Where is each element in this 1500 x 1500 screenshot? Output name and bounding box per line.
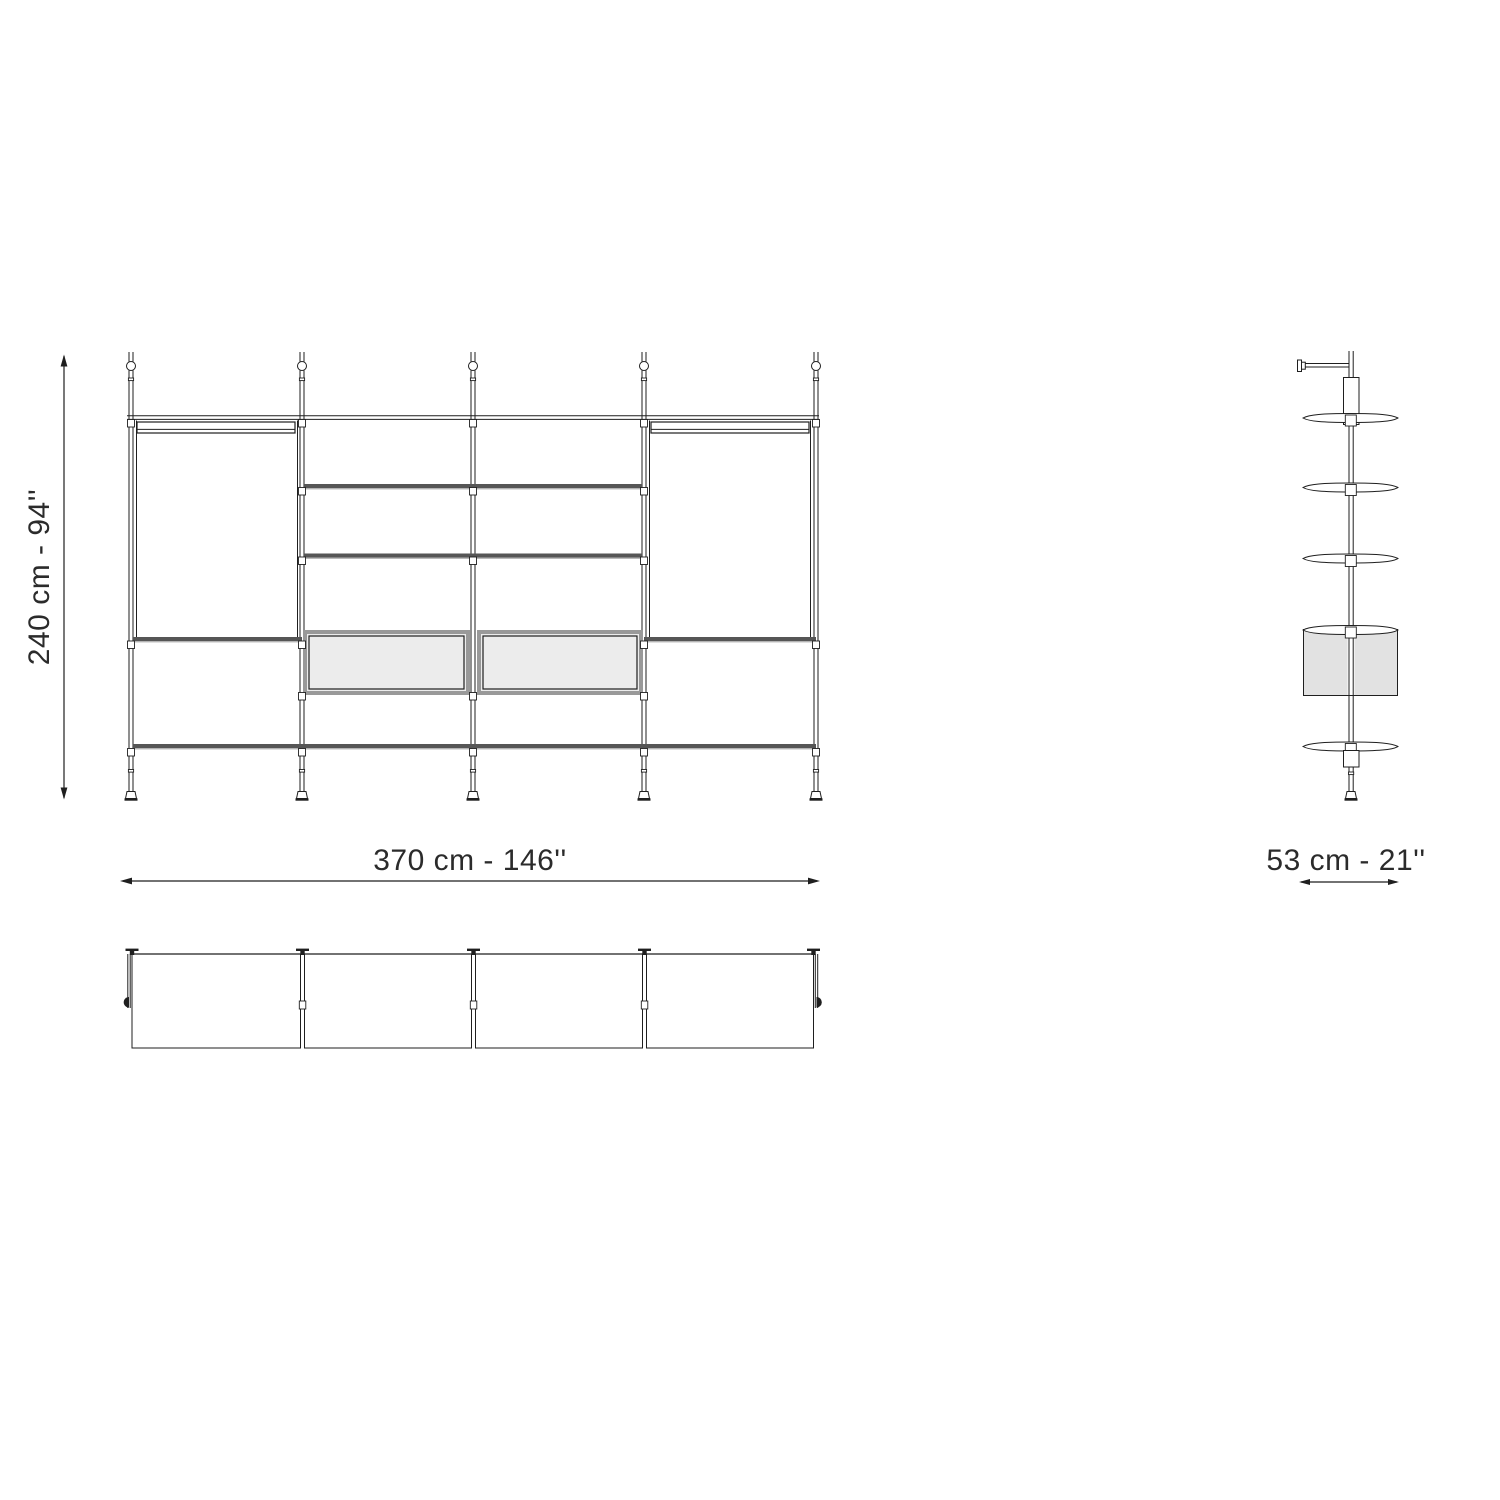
side-connectors (1345, 415, 1356, 755)
hanging-rod-right (651, 422, 809, 433)
side-foot (1345, 792, 1358, 800)
cabinet-left (305, 632, 468, 693)
depth-dimension-label: 53 cm - 21'' (1266, 844, 1425, 878)
post-connectors (128, 420, 820, 757)
side-shelf-profiles (1303, 414, 1398, 752)
ceiling-mount-ring (298, 362, 307, 371)
cabinet-right (479, 632, 641, 693)
ceiling-mount-ring (469, 362, 478, 371)
wardrobe-side-panels (137, 421, 811, 638)
front-feet (125, 792, 823, 800)
dimension-lines (61, 355, 1399, 886)
shelving-unit-drawing (0, 0, 1500, 1500)
plan-view (124, 950, 822, 1048)
lower-sleeve (1344, 751, 1360, 768)
ceiling-mount-ring (127, 362, 136, 371)
side-elevation-view (1298, 351, 1399, 800)
width-dimension-arrow (120, 878, 820, 885)
plan-divider-connectors (299, 1001, 648, 1009)
height-dimension-label: 240 cm - 94'' (23, 489, 57, 665)
wall-arm (1298, 360, 1350, 372)
top-rail (127, 416, 819, 420)
height-dimension-arrow (61, 355, 68, 800)
depth-dimension-arrow (1299, 879, 1399, 885)
front-posts (127, 352, 821, 791)
technical-drawing-page: 240 cm - 94'' 370 cm - 146'' 53 cm - 21'… (0, 0, 1500, 1500)
wall-arm-end-cap (1298, 360, 1302, 372)
ceiling-mount-ring (812, 362, 821, 371)
hanging-rod-left (137, 422, 295, 433)
plan-end-posts (124, 954, 822, 1008)
width-dimension-label: 370 cm - 146'' (373, 844, 567, 878)
ceiling-mount-ring (640, 362, 649, 371)
front-elevation-view (125, 352, 823, 800)
